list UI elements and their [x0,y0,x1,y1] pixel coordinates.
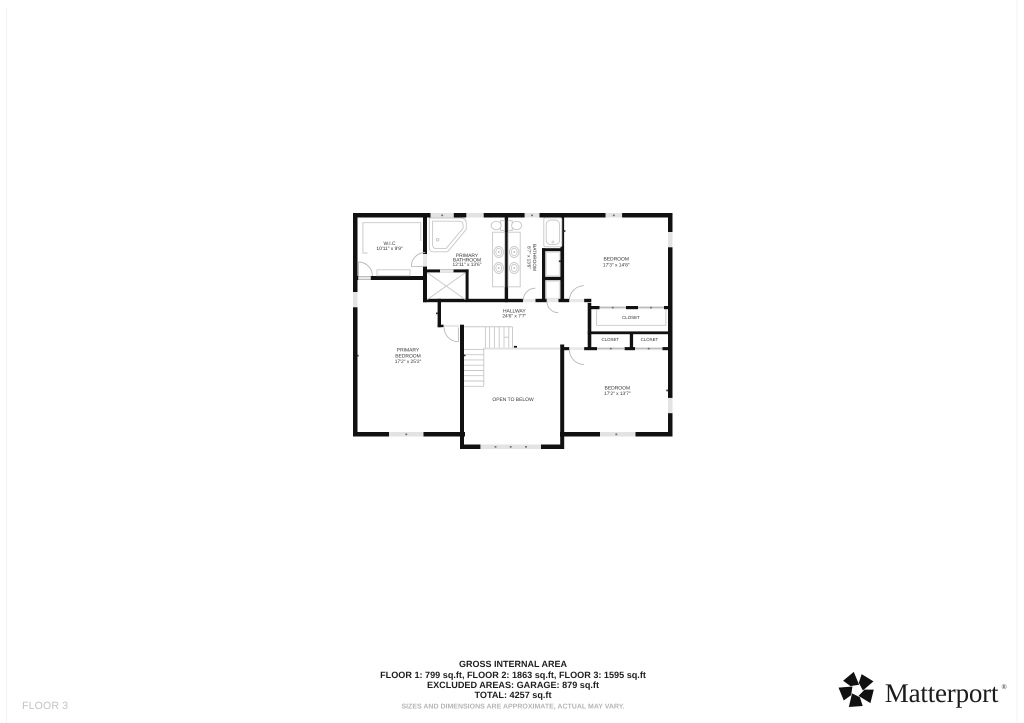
svg-text:CLOSET: CLOSET [601,337,619,342]
svg-text:BEDROOM: BEDROOM [605,386,631,392]
svg-text:Matterport: Matterport [885,678,999,708]
svg-text:12'11" x 13'6": 12'11" x 13'6" [453,262,482,268]
svg-text:8'7" x 13'6": 8'7" x 13'6" [526,246,531,269]
svg-text:OPEN TO BELOW: OPEN TO BELOW [492,397,534,403]
svg-text:CLOSET: CLOSET [622,315,640,320]
svg-text:BEDROOM: BEDROOM [603,256,629,262]
svg-text:FLOOR 1: 799 sq.ft, FLOOR 2: 1: FLOOR 1: 799 sq.ft, FLOOR 2: 1863 sq.ft,… [380,670,646,680]
svg-text:10'11" x 9'9": 10'11" x 9'9" [376,246,402,252]
svg-text:PRIMARY: PRIMARY [397,348,420,354]
svg-text:17'3" x 14'8": 17'3" x 14'8" [603,262,630,268]
svg-text:EXCLUDED AREAS: GARAGE: 879 sq: EXCLUDED AREAS: GARAGE: 879 sq.ft [427,680,599,690]
svg-text:24'6" x 7'7": 24'6" x 7'7" [502,314,526,320]
svg-text:CLOSET: CLOSET [641,337,659,342]
svg-text:SIZES AND DIMENSIONS ARE APPRO: SIZES AND DIMENSIONS ARE APPROXIMATE, AC… [401,704,624,711]
svg-text:FLOOR 3: FLOOR 3 [22,700,68,712]
svg-text:BEDROOM: BEDROOM [395,353,421,359]
svg-text:17'2" x 25'2": 17'2" x 25'2" [395,359,422,365]
svg-text:GROSS INTERNAL AREA: GROSS INTERNAL AREA [459,659,568,669]
svg-text:BATHROOM: BATHROOM [532,244,538,271]
svg-text:®: ® [1002,683,1008,691]
svg-text:TOTAL: 4257 sq.ft: TOTAL: 4257 sq.ft [475,690,552,700]
svg-text:17'2" x 13'7": 17'2" x 13'7" [604,391,631,397]
